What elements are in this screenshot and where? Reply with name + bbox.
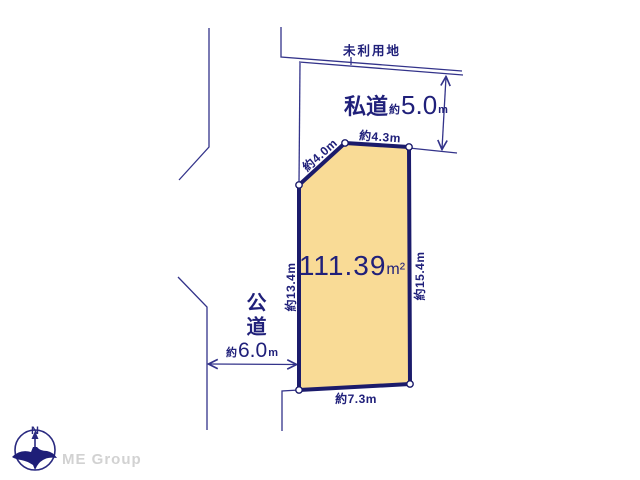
public-road-width-label: 約 6.0 m — [226, 340, 278, 361]
left-road-lower-edge — [178, 277, 207, 430]
parcel-lower-boundary-step — [282, 390, 299, 431]
private-road-value: 5.0 — [401, 92, 437, 118]
public-road-name: 公道 — [244, 292, 264, 340]
compass-north-label: N — [31, 425, 39, 437]
public-road-approx: 約 — [226, 348, 237, 361]
public-road-unit: m — [268, 348, 278, 361]
dimension-bottom-edge: 約7.3m — [335, 393, 377, 405]
dimension-right-edge: 約15.4m — [414, 251, 426, 300]
public-road-width-arrow — [209, 364, 296, 365]
compass-logo: N — [12, 425, 57, 470]
vertex-marker — [407, 381, 413, 387]
parcel-area-value: 111.39 — [299, 252, 386, 280]
brand-text: ME Group — [62, 452, 142, 467]
parcel-corner-extension-line — [409, 148, 457, 153]
left-road-upper-edge — [179, 28, 209, 180]
vertex-marker — [406, 144, 412, 150]
land-plot-diagram: N 未利用地 私道 約 5.0 m 約4.3m 約4.0m 約13.4m 約15… — [0, 0, 640, 480]
diagram-geometry: N — [0, 0, 640, 480]
unused-land-label: 未利用地 — [343, 45, 401, 58]
unused-land-boundary-lower — [299, 62, 463, 75]
parcel-area-label: 111.39 m² — [299, 252, 405, 280]
vertex-marker — [296, 387, 302, 393]
private-road-unit: m — [438, 105, 448, 118]
private-road-name: 私道 — [344, 96, 388, 118]
private-road-label: 私道 約 5.0 m — [344, 92, 448, 118]
private-road-approx: 約 — [389, 105, 400, 118]
dimension-top-edge: 約4.3m — [359, 130, 402, 145]
vertex-marker — [296, 182, 302, 188]
parcel-area-unit: m² — [386, 262, 405, 280]
vertex-marker — [342, 140, 348, 146]
private-road-left-edge — [299, 63, 300, 184]
dimension-left-edge: 約13.4m — [285, 262, 297, 311]
public-road-value: 6.0 — [238, 340, 267, 361]
bird-silhouette-icon — [12, 447, 57, 470]
